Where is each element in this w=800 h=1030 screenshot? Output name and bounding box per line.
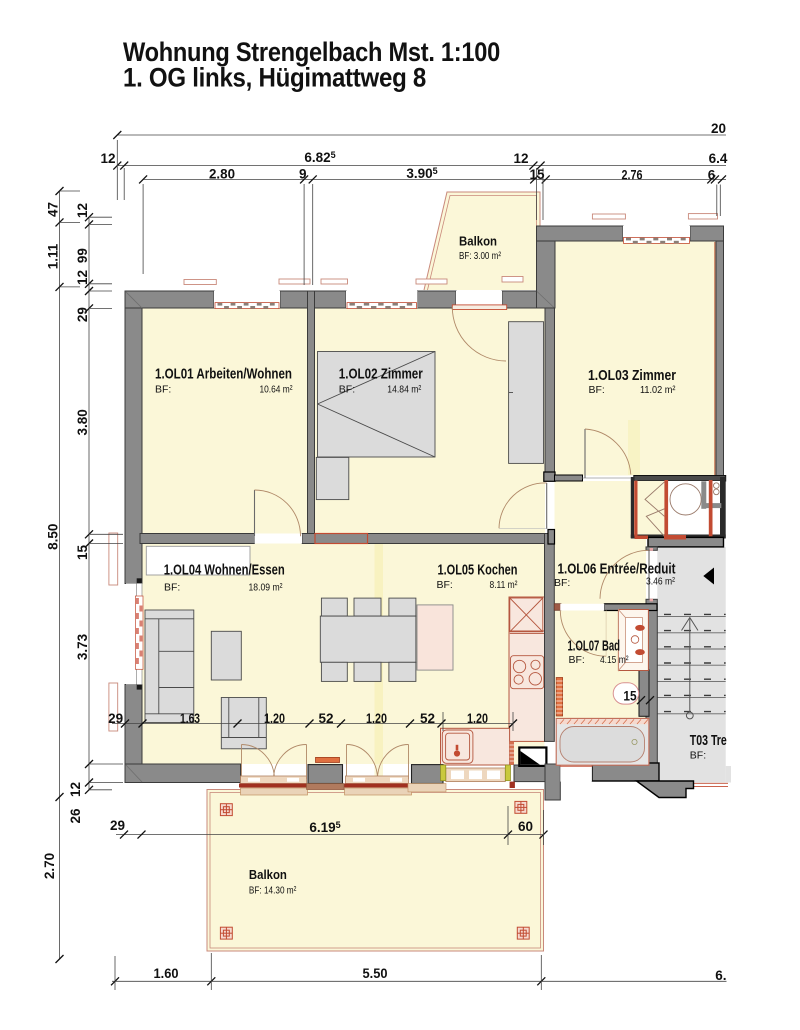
svg-text:1.OL07 Bad: 1.OL07 Bad [568,638,621,655]
svg-text:12: 12 [68,782,83,797]
svg-text:1.60: 1.60 [154,966,179,981]
svg-text:3.46 m²: 3.46 m² [646,576,675,588]
svg-text:1.OL03 Zimmer: 1.OL03 Zimmer [588,367,676,384]
svg-text:1.20: 1.20 [264,711,285,726]
svg-text:47: 47 [46,202,61,217]
svg-text:BF:: BF: [690,750,706,762]
svg-text:6: 6 [708,167,716,182]
svg-text:15: 15 [75,545,90,561]
svg-text:BF:: BF: [437,579,453,591]
svg-text:15: 15 [529,167,545,182]
svg-text:2.80: 2.80 [209,166,235,181]
svg-text:BF:: BF: [589,384,605,396]
svg-text:9: 9 [299,166,307,181]
svg-text:BF:: BF: [164,582,180,594]
svg-text:12: 12 [513,151,528,166]
svg-text:52: 52 [420,711,435,726]
svg-text:12: 12 [75,203,90,218]
svg-text:15: 15 [623,689,637,704]
svg-text:1. OG links, Hügimattweg 8: 1. OG links, Hügimattweg 8 [123,63,426,93]
svg-text:52: 52 [318,711,333,726]
svg-text:11.02 m²: 11.02 m² [640,384,676,396]
svg-text:Balkon: Balkon [249,867,287,882]
svg-text:1.OL04 Wohnen/Essen: 1.OL04 Wohnen/Essen [164,562,285,579]
svg-text:60: 60 [518,819,533,834]
svg-text:1.OL02 Zimmer: 1.OL02 Zimmer [339,366,423,383]
svg-text:3.80: 3.80 [75,409,90,435]
svg-text:29: 29 [110,818,125,833]
svg-text:6.: 6. [715,968,726,983]
svg-text:BF: 14.30 m²: BF: 14.30 m² [249,885,297,897]
svg-text:1.OL05 Kochen: 1.OL05 Kochen [438,562,518,579]
svg-text:BF:: BF: [554,577,570,589]
svg-text:1.OL01 Arbeiten/Wohnen: 1.OL01 Arbeiten/Wohnen [155,366,292,383]
svg-text:3.73: 3.73 [75,633,90,660]
svg-text:BF: 3.00 m²: BF: 3.00 m² [459,250,501,262]
svg-text:1.63: 1.63 [180,711,200,726]
svg-text:BF:: BF: [339,384,355,396]
svg-text:26: 26 [68,808,83,824]
svg-text:29: 29 [108,711,123,726]
svg-text:BF:: BF: [155,384,171,396]
svg-text:1.20: 1.20 [366,711,387,726]
svg-text:Balkon: Balkon [459,234,497,249]
svg-text:12: 12 [100,151,115,166]
svg-text:2.76: 2.76 [622,167,643,182]
svg-text:20: 20 [711,121,726,136]
svg-text:99: 99 [75,248,90,263]
svg-text:1.11: 1.11 [46,243,61,269]
svg-text:T03 Tre: T03 Tre [690,732,727,749]
svg-text:14.84 m²: 14.84 m² [387,384,421,396]
svg-text:6.4: 6.4 [709,151,728,166]
svg-text:5.50: 5.50 [363,966,388,981]
svg-text:2.70: 2.70 [42,853,57,879]
svg-text:BF:: BF: [569,654,585,666]
svg-text:1.20: 1.20 [467,711,488,726]
svg-text:8.11 m²: 8.11 m² [490,579,518,591]
svg-text:18.09 m²: 18.09 m² [249,582,283,594]
svg-text:8.50: 8.50 [46,524,61,550]
svg-text:29: 29 [75,307,90,322]
svg-text:12: 12 [75,270,90,285]
svg-text:4.15 m²: 4.15 m² [600,654,629,666]
svg-text:10.64 m²: 10.64 m² [260,384,293,396]
